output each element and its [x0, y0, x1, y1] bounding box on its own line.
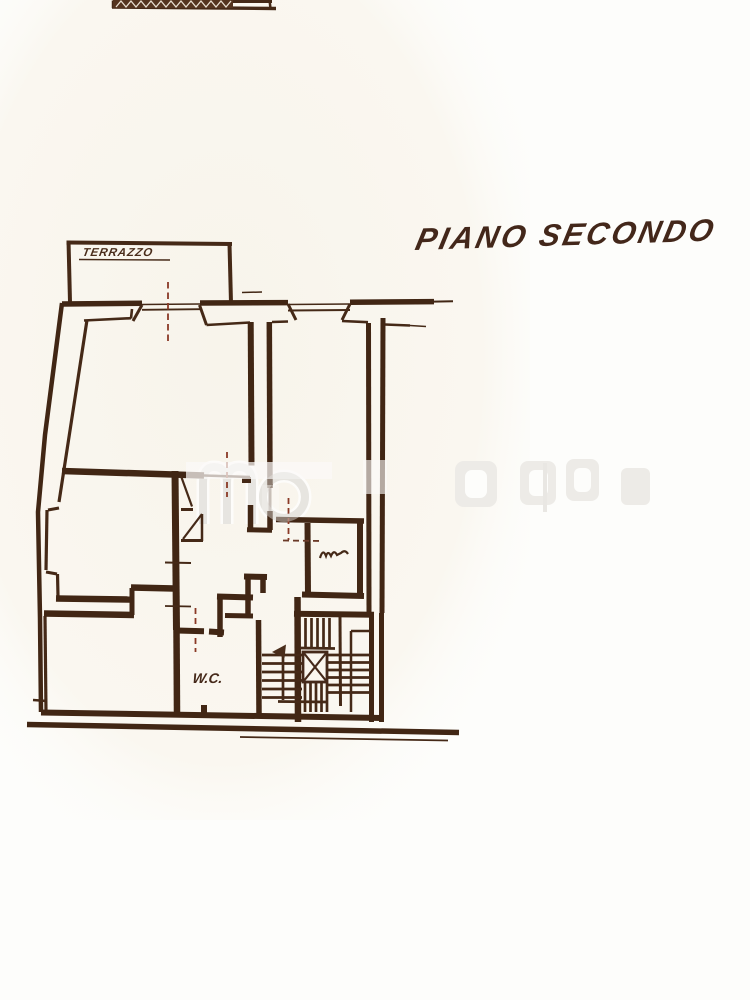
svg-text:W.C.: W.C.: [192, 670, 224, 686]
svg-text:TERRAZZO: TERRAZZO: [81, 247, 154, 259]
